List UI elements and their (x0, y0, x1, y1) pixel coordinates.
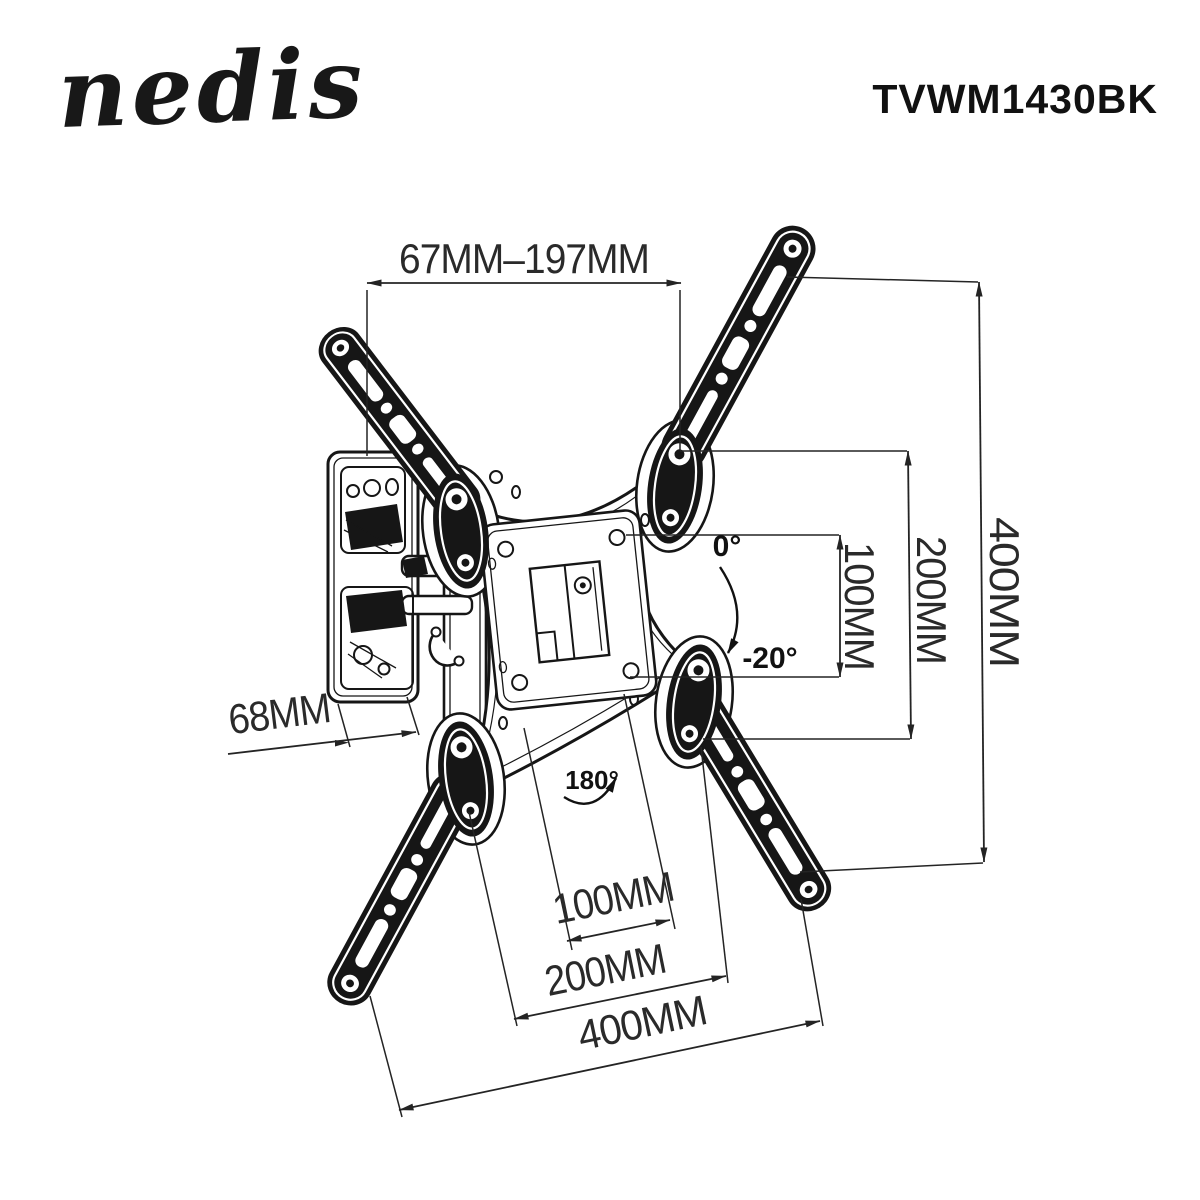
tilt-arc-arrow (720, 567, 737, 653)
vesa-hole (609, 529, 625, 545)
tilt-to-label: -20° (742, 642, 797, 675)
dim-label-right-200: 200MM (908, 536, 955, 664)
diagram-page: nedis TVWM1430BK (0, 0, 1200, 1200)
dim-right-400: 400MM (787, 277, 1028, 872)
vesa-plate (479, 509, 658, 711)
dim-label-right-400: 400MM (981, 517, 1028, 667)
lower-clamp (346, 590, 407, 633)
central-opening (530, 561, 609, 662)
tilt-from-label: 0° (713, 530, 742, 563)
upper-clamp (345, 504, 403, 550)
plate-hole (512, 486, 520, 498)
swivel-label: 180° (565, 765, 619, 795)
plate-hole (490, 471, 502, 483)
nedis-logo: nedis (56, 26, 368, 150)
dim-label-depth: 68MM (226, 684, 333, 743)
vesa-hole (511, 674, 527, 690)
dim-label-right-100: 100MM (836, 542, 883, 670)
vesa-hole (497, 541, 513, 557)
model-number: TVWM1430BK (872, 76, 1158, 122)
tv-mount-technical-drawing: nedis TVWM1430BK (0, 0, 1200, 1200)
dim-label-bottom-200: 200MM (541, 935, 670, 1005)
dim-bottom-400: 400MM (370, 899, 823, 1117)
dim-label-top: 67MM–197MM (399, 235, 649, 282)
header: nedis TVWM1430BK (56, 26, 1158, 150)
